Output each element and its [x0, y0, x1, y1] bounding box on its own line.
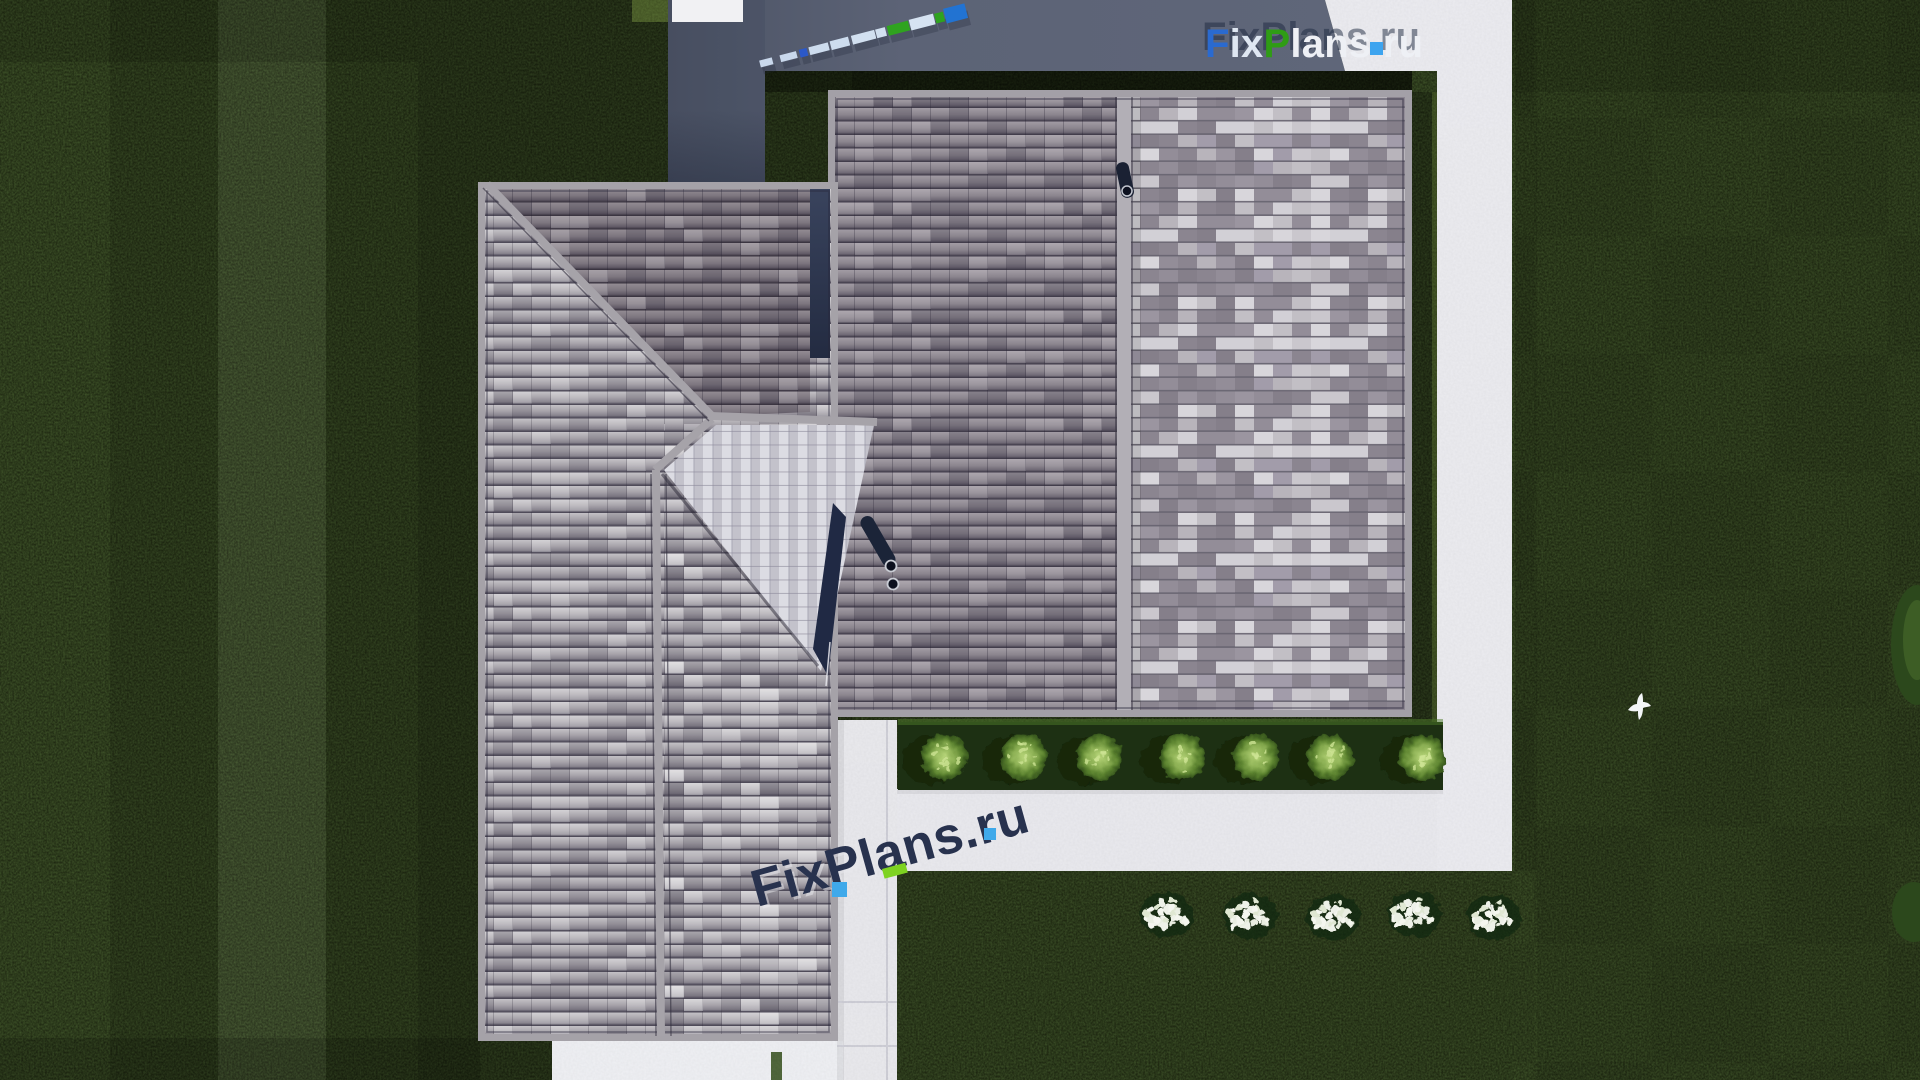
svg-text:FixPlans.ru: FixPlans.ru	[1205, 22, 1423, 66]
